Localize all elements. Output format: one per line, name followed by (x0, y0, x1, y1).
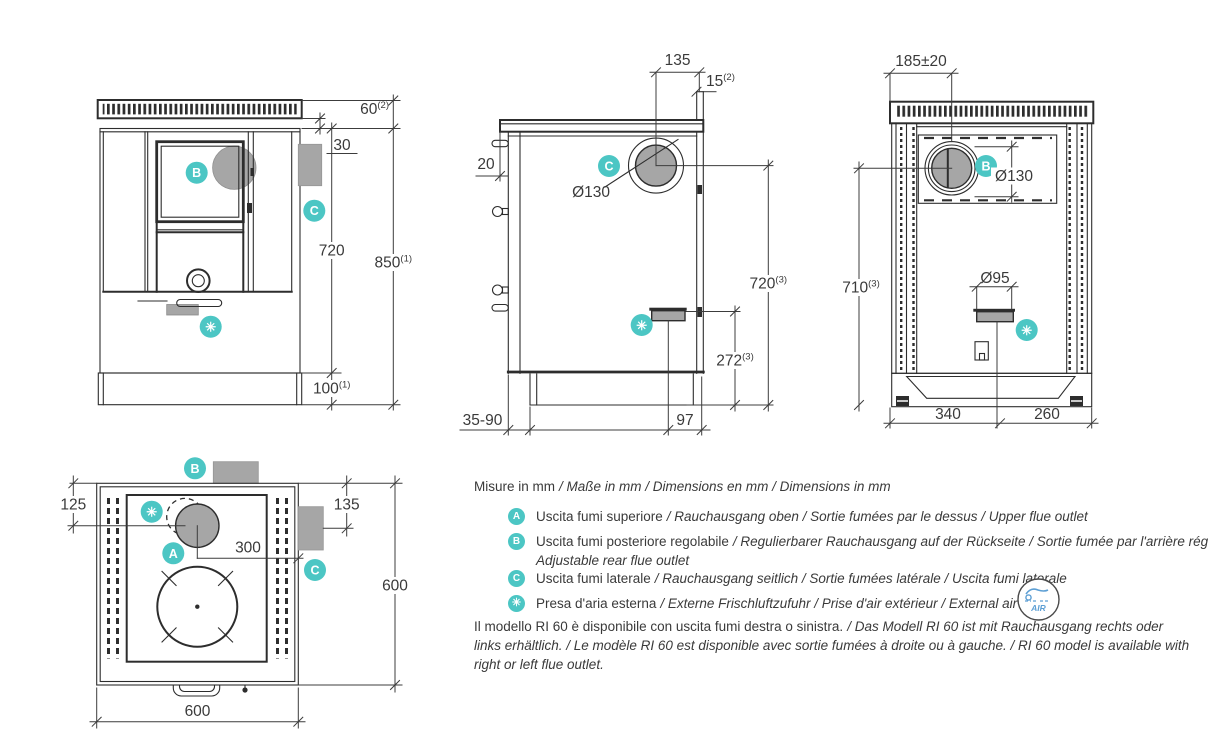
air-icon-label: AIR (1030, 603, 1047, 613)
dim-rear-185: 185±20 (895, 53, 947, 70)
dim-side-15: 15(2) (706, 72, 735, 90)
dimensional-drawing-page: B C ✳ 30 720 (0, 0, 1208, 754)
top-badge-c: C (304, 559, 326, 581)
units-primary: Misure in mm (474, 479, 555, 494)
dim-side-97: 97 (676, 412, 693, 429)
front-side-flue-outlet (298, 144, 321, 185)
rear-ash-drawer (907, 377, 1075, 399)
dim-side-d130: Ø130 (572, 184, 610, 201)
burner-center (195, 605, 199, 609)
legend-text-c: Uscita fumi laterale/ Rauchausgang seitl… (536, 569, 1067, 588)
svg-text:✳: ✳ (146, 505, 157, 520)
top-rear-flue-outlet (213, 462, 258, 484)
side-view-drawing: C ✳ 135 15(2) 20 Ø130 (440, 45, 805, 445)
front-rear-flue-circle (213, 146, 256, 189)
oven-knob-inner (192, 275, 204, 287)
legend-text-air: Presa d'aria esterna/ Externe Frischluft… (536, 594, 1046, 613)
front-tab-lower (492, 305, 508, 312)
legend-badge-a: A (508, 508, 525, 525)
side-top-plate (500, 120, 703, 132)
dim-rear-d130: Ø130 (995, 168, 1033, 185)
svg-text:C: C (310, 564, 319, 578)
legend-item-side-flue: C Uscita fumi laterale/ Rauchausgang sei… (474, 569, 1067, 588)
door-latch (251, 168, 255, 176)
rear-stove-outline (890, 102, 1093, 407)
air-icon-ring (1018, 579, 1059, 620)
front-badge-c: C (303, 200, 325, 222)
top-side-flue-outlet (298, 507, 323, 550)
rear-top-grille (895, 106, 1088, 117)
front-knob-upper (493, 207, 503, 217)
legend-badge-c: C (508, 570, 525, 587)
dim-top-125: 125 (60, 497, 86, 514)
legend-item-rear-flue: B Uscita fumi posteriore regolabile/ Reg… (474, 532, 1208, 570)
svg-text:C: C (310, 204, 319, 218)
side-badge-c: C (598, 155, 620, 177)
rear-base (892, 373, 1092, 406)
front-stove-outline (98, 100, 322, 405)
dim-rear-340: 340 (935, 406, 961, 423)
top-badge-air: ✳ (141, 501, 163, 523)
front-dimensions: 30 720 100(1) 60(2) 850(1) (302, 95, 416, 410)
air-inlet-side (652, 311, 685, 321)
svg-text:B: B (981, 160, 990, 174)
units-line: Misure in mm/ Maße in mm / Dimensions en… (474, 477, 891, 496)
note-primary: Il modello RI 60 è disponibile con uscit… (474, 619, 843, 634)
units-secondary: / Maße in mm / Dimensions en mm / Dimens… (559, 479, 891, 494)
rear-vent-mark-top (697, 185, 702, 194)
availability-note: Il modello RI 60 è disponibile con uscit… (474, 617, 1190, 674)
legend-c-secondary: / Rauchausgang seitlich / Sortie fumées … (655, 571, 1067, 586)
dim-side-3590: 35-90 (463, 412, 503, 429)
dim-rear-d95: Ø95 (980, 270, 1009, 287)
legend-b-primary: Uscita fumi posteriore regolabile (536, 534, 729, 549)
side-stove-outline (492, 92, 703, 405)
dim-side-135: 135 (665, 52, 691, 69)
legend-badge-b: B (508, 533, 525, 550)
rear-junction-box (975, 342, 988, 360)
dim-rear-260: 260 (1034, 406, 1060, 423)
dim-side-20: 20 (477, 156, 495, 173)
dim-front-60: 60(2) (360, 100, 389, 118)
svg-text:✳: ✳ (636, 318, 647, 333)
oven-knob (187, 269, 210, 292)
rear-air-inlet (977, 312, 1014, 322)
legend-text-a: Uscita fumi superiore/ Rauchausgang oben… (536, 507, 1088, 526)
front-badge-air: ✳ (200, 316, 222, 338)
side-dimensions: 135 15(2) 20 Ø130 720(3) (460, 52, 791, 435)
legend-air-secondary: / Externe Frischluftzufuhr / Prise d'air… (660, 596, 1045, 611)
legend-air-primary: Presa d'aria esterna (536, 596, 656, 611)
svg-text:C: C (604, 160, 613, 174)
legend-item-upper-flue: A Uscita fumi superiore/ Rauchausgang ob… (474, 507, 1088, 526)
front-knob-lower (493, 285, 503, 295)
dim-top-600-right: 600 (382, 578, 408, 595)
svg-text:✳: ✳ (1021, 323, 1032, 338)
dim-front-30: 30 (333, 137, 351, 154)
front-top-grille (103, 104, 297, 115)
legend-badge-air: ✳ (508, 595, 525, 612)
dim-top-300: 300 (235, 540, 261, 557)
dim-top-135: 135 (334, 497, 360, 514)
legend-b-secondary: / Regulierbarer Rauchausgang auf der Rüc… (733, 534, 1208, 549)
top-badge-b: B (184, 457, 206, 479)
front-badge-b: B (186, 162, 208, 184)
rear-view-drawing: B ✳ 185±20 Ø130 (840, 45, 1120, 445)
dim-top-600-bottom: 600 (185, 703, 211, 720)
door-hinge (247, 203, 252, 213)
legend-c-primary: Uscita fumi laterale (536, 571, 651, 586)
front-view-drawing: B C ✳ 30 720 (55, 90, 410, 420)
legend-item-air-inlet: ✳ Presa d'aria esterna/ Externe Frischlu… (474, 594, 1046, 613)
svg-text:A: A (169, 547, 178, 561)
top-stove-outline (97, 462, 324, 696)
svg-text:B: B (192, 166, 201, 180)
dim-front-720: 720 (319, 243, 345, 260)
svg-text:✳: ✳ (205, 320, 216, 335)
rear-badge-air: ✳ (1016, 319, 1038, 341)
top-latch-knob (242, 687, 247, 692)
side-badge-air: ✳ (631, 314, 653, 336)
front-base (98, 373, 301, 405)
top-badge-a: A (162, 542, 184, 564)
external-air-icon: AIR (1016, 577, 1061, 622)
legend-a-primary: Uscita fumi superiore (536, 509, 663, 524)
legend-text-b: Uscita fumi posteriore regolabile/ Regul… (536, 532, 1208, 570)
legend-b-secondary-line2: Adjustable rear flue outlet (536, 551, 1208, 570)
top-view-drawing: B ✳ A C 125 300 (50, 450, 420, 740)
legend-a-secondary: / Rauchausgang oben / Sortie fumées par … (667, 509, 1088, 524)
svg-text:B: B (190, 462, 199, 476)
